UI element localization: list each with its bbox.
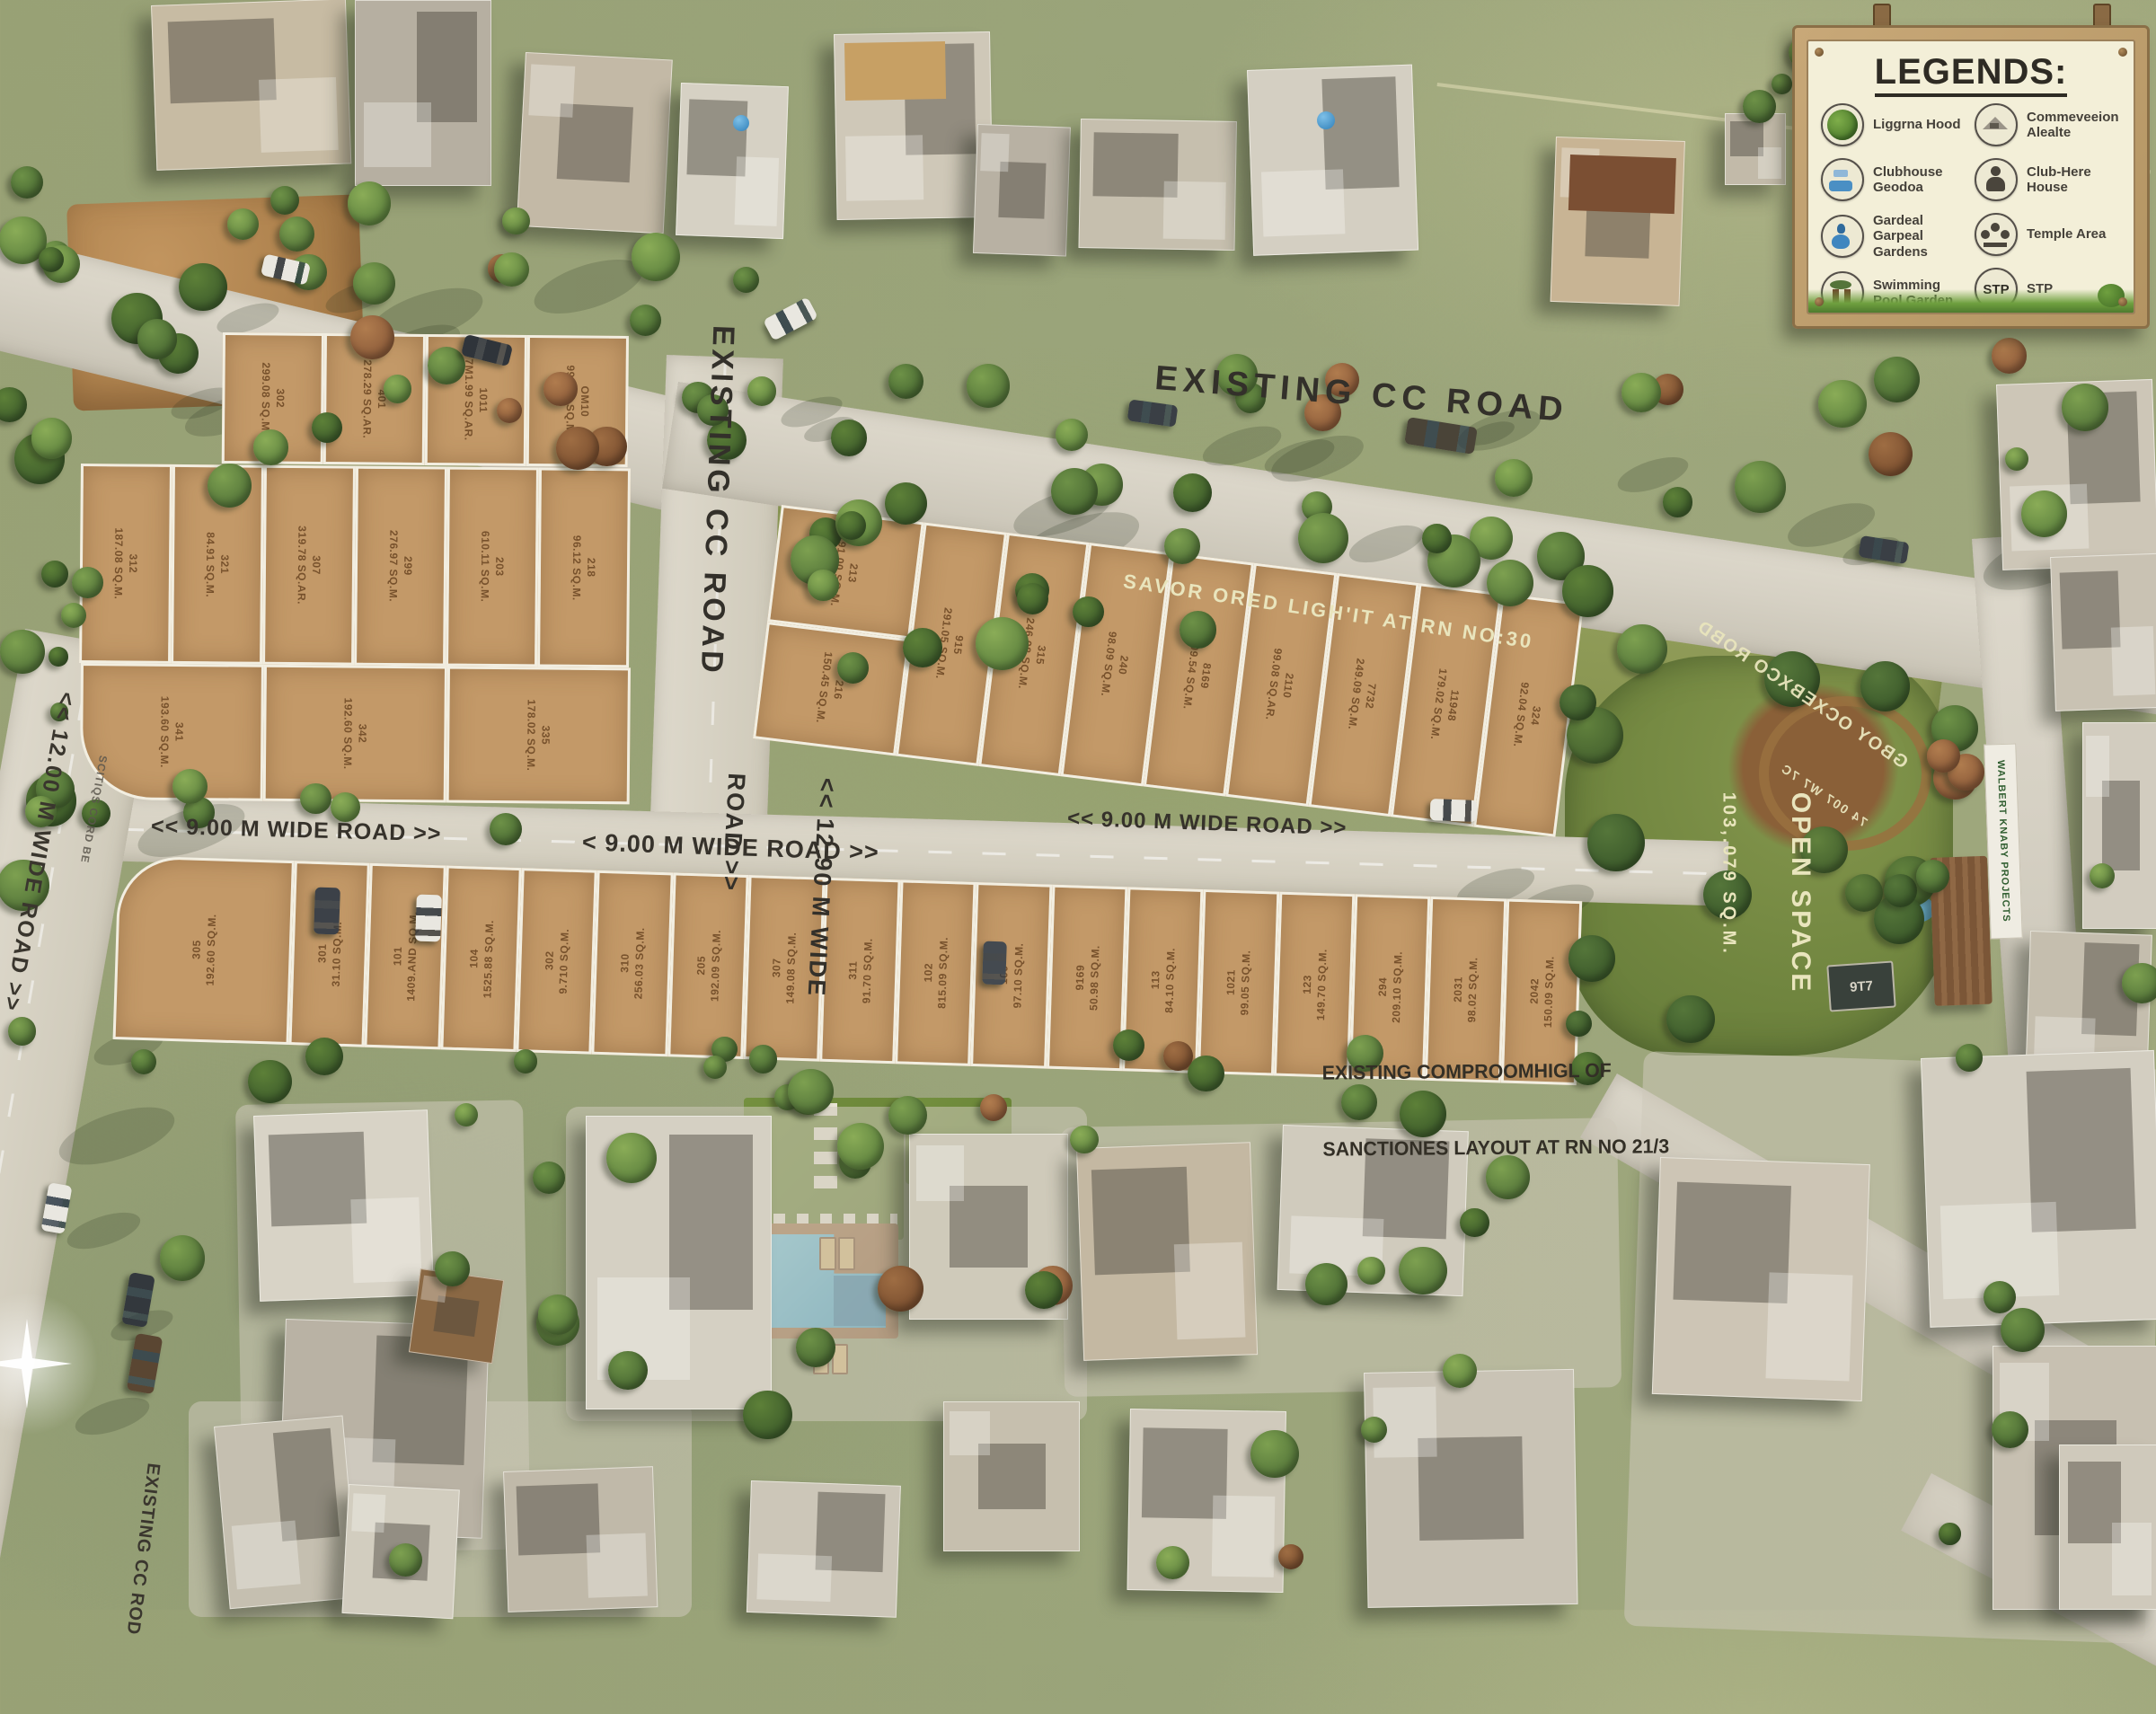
building bbox=[1652, 1157, 1870, 1401]
tree bbox=[348, 181, 392, 225]
tree bbox=[137, 319, 177, 358]
building-roof-section bbox=[350, 1197, 422, 1283]
tree bbox=[788, 1069, 834, 1115]
car bbox=[763, 296, 818, 340]
label-12-90-line1: << 12.90 M WIDE bbox=[803, 777, 842, 998]
building-roof-section bbox=[2111, 626, 2156, 696]
tree bbox=[131, 1049, 156, 1074]
building bbox=[973, 124, 1071, 257]
tree bbox=[743, 1391, 792, 1440]
tree bbox=[253, 429, 288, 464]
building-roof-section bbox=[587, 1533, 648, 1597]
tree bbox=[1939, 1523, 1960, 1544]
legend-item-label: Clubhouse Geodoa bbox=[1873, 164, 1967, 196]
vertical-signboard: WALBERT KNABY PROJECTS bbox=[1984, 743, 2023, 939]
building-roof-section bbox=[845, 135, 923, 200]
tree bbox=[1884, 874, 1917, 907]
legend-screw bbox=[1815, 48, 1824, 57]
plot-label: 113 84.10 SQ.M. bbox=[1147, 947, 1179, 1013]
tree bbox=[1443, 1354, 1477, 1388]
plot-label: 9169 50.98 SQ.M. bbox=[1072, 945, 1103, 1012]
car bbox=[982, 941, 1007, 985]
plot-label: 2110 99.08 SQ.AR. bbox=[1262, 647, 1300, 722]
building-roof-section bbox=[1163, 181, 1226, 239]
plot-row-upper-left-middle: 312 187.08 SQ.M.321 84.91 SQ.M.307 319.7… bbox=[79, 464, 631, 667]
building bbox=[253, 1109, 434, 1302]
clubhouse-garden-icon bbox=[1821, 158, 1864, 201]
legend-board: LEGENDS: Liggrna Hood Clubhouse Geodoa G… bbox=[1792, 25, 2150, 329]
tree bbox=[831, 420, 868, 456]
plot: 1021 99.05 SQ.M. bbox=[1197, 889, 1279, 1076]
building bbox=[1078, 119, 1236, 251]
garden-icon bbox=[1821, 215, 1864, 258]
tree bbox=[749, 1045, 778, 1073]
building-roof-section bbox=[1261, 169, 1345, 236]
tree bbox=[1056, 419, 1088, 451]
tree bbox=[980, 1094, 1007, 1121]
map-canvas: WALBERT KNABY PROJECTS 9T7 EXISTING CC R… bbox=[0, 0, 2156, 1610]
legend-screw bbox=[2118, 297, 2127, 306]
tree bbox=[837, 1123, 884, 1170]
tree bbox=[1422, 524, 1452, 553]
building-roof-section bbox=[1212, 1496, 1275, 1577]
tree bbox=[1663, 487, 1693, 517]
plot-label: 2042 150.09 SQ.M. bbox=[1525, 956, 1557, 1029]
car bbox=[314, 888, 340, 935]
building-roof-section bbox=[2086, 736, 2108, 797]
tree bbox=[455, 1103, 478, 1126]
label-compromise-line1: EXISTING COMPROOMHIGL OF bbox=[1322, 1058, 1612, 1083]
tree bbox=[514, 1049, 538, 1073]
plot: 335 178.02 SQ.M. bbox=[446, 667, 631, 805]
tree bbox=[384, 375, 411, 402]
building-roof-section bbox=[231, 1521, 300, 1590]
tree bbox=[494, 252, 529, 287]
tree bbox=[1568, 935, 1614, 981]
plot-label: 324 92.04 SQ.M. bbox=[1510, 681, 1547, 749]
tree bbox=[172, 769, 208, 804]
plot-label: 299 276.97 SQ.M. bbox=[385, 530, 415, 602]
tree bbox=[49, 647, 68, 667]
tree bbox=[606, 1133, 657, 1183]
tree bbox=[1163, 1041, 1193, 1071]
vertical-signboard-text: WALBERT KNABY PROJECTS bbox=[1995, 760, 2011, 923]
tree bbox=[747, 376, 777, 406]
tree bbox=[1305, 1263, 1347, 1305]
tree bbox=[435, 1251, 469, 1285]
plot: 203 610.11 SQ.M. bbox=[446, 467, 539, 667]
label-existing-cc-rod-bottom: EXISTING CC ROD bbox=[123, 1462, 163, 1624]
trees-icon bbox=[1821, 103, 1864, 146]
tree bbox=[1361, 1417, 1387, 1443]
legend-item: Clubhouse Geodoa bbox=[1821, 158, 1967, 201]
tree bbox=[179, 263, 226, 311]
legend-item-label: Temple Area bbox=[2027, 226, 2106, 242]
plot-label: 218 96.12 SQ.M. bbox=[570, 535, 599, 600]
tree bbox=[0, 387, 27, 422]
tree bbox=[1562, 565, 1613, 616]
legend-screw bbox=[2118, 48, 2127, 57]
legend-item: Liggrna Hood bbox=[1821, 103, 1967, 146]
building bbox=[1247, 65, 1418, 256]
plot-label: 305 192.60 SQ.M. bbox=[188, 914, 219, 986]
plot: 218 96.12 SQ.M. bbox=[537, 467, 631, 667]
tree bbox=[533, 1162, 565, 1194]
building-roof-section bbox=[2112, 1523, 2151, 1596]
stp-unit-label: 9T7 bbox=[1850, 978, 1874, 995]
tree bbox=[632, 233, 680, 281]
plot-label: 11948 179.02 SQ.M. bbox=[1427, 667, 1465, 742]
building-roof-section bbox=[950, 1411, 990, 1456]
plot-label: 7732 249.09 SQ.M. bbox=[1345, 658, 1383, 732]
tree bbox=[1051, 468, 1098, 515]
building-roof-section bbox=[1174, 1242, 1246, 1339]
building bbox=[1725, 113, 1786, 185]
building bbox=[1921, 1050, 2156, 1328]
plot-label: 302 299.08 SQ.M. bbox=[258, 362, 287, 434]
tree bbox=[1735, 461, 1787, 513]
legend-panel: LEGENDS: Liggrna Hood Clubhouse Geodoa G… bbox=[1807, 40, 2135, 314]
tree bbox=[1278, 1544, 1303, 1569]
tree bbox=[2090, 863, 2115, 888]
label-compromise-line2: SANCTIONES LAYOUT AT RN NO 21/3 bbox=[1322, 1135, 1669, 1161]
plot-label: 104 1525.88 SQ.M. bbox=[465, 919, 497, 998]
tree bbox=[903, 628, 942, 667]
tree bbox=[1073, 596, 1103, 627]
tree bbox=[305, 1038, 343, 1075]
tree bbox=[11, 166, 43, 199]
tree bbox=[41, 561, 68, 588]
tree bbox=[543, 372, 577, 405]
tree bbox=[1560, 685, 1595, 720]
plot-label: 341 193.60 SQ.M. bbox=[157, 696, 187, 768]
plot-label: 321 84.91 SQ.M. bbox=[203, 532, 233, 597]
tree bbox=[2062, 384, 2108, 430]
legend-item: Club-Here House bbox=[1975, 158, 2121, 201]
tree bbox=[1621, 373, 1661, 412]
tree bbox=[703, 1056, 727, 1079]
label-existing-cc-road-top: EXISTING CC ROAD bbox=[1153, 359, 1569, 430]
building bbox=[2059, 1445, 2156, 1610]
tree bbox=[2122, 963, 2156, 1003]
plot: 341 193.60 SQ.M. bbox=[80, 663, 264, 801]
tree bbox=[2005, 447, 2028, 471]
tree bbox=[0, 630, 45, 675]
tree bbox=[1772, 74, 1792, 94]
tree bbox=[208, 464, 252, 508]
plot-label: 401 278.29 SQ.AR. bbox=[359, 359, 389, 438]
legend-item-label: Liggrna Hood bbox=[1873, 117, 1961, 132]
building-roof-section bbox=[916, 1145, 964, 1201]
tree bbox=[1874, 357, 1920, 402]
building-roof-section bbox=[364, 102, 431, 167]
plot-label: 335 178.02 SQ.M. bbox=[524, 699, 553, 771]
legend-left-column: Liggrna Hood Clubhouse Geodoa Gardeal Ga… bbox=[1821, 103, 1967, 314]
tree bbox=[808, 570, 838, 600]
plot: 342 192.60 SQ.M. bbox=[263, 665, 447, 803]
tree bbox=[1818, 380, 1866, 428]
tree bbox=[1587, 814, 1645, 871]
tree bbox=[72, 567, 103, 598]
water-tank bbox=[733, 115, 749, 131]
tree bbox=[1164, 528, 1200, 564]
club-house-icon bbox=[1975, 158, 2018, 201]
plot-label: 1011 7M1.99 SQ.AR. bbox=[461, 359, 490, 441]
tree bbox=[160, 1235, 205, 1280]
label-12-90-m-wide-road: << 12.90 M WIDE ROAD >> bbox=[677, 737, 874, 1042]
tree bbox=[1992, 338, 2027, 373]
building-roof-section bbox=[980, 133, 1009, 172]
building bbox=[517, 52, 673, 234]
tree bbox=[2001, 1308, 2045, 1352]
tree bbox=[497, 398, 522, 423]
plot: 305 192.60 SQ.M. bbox=[113, 855, 295, 1045]
building bbox=[151, 0, 351, 171]
plot: 216 150.45 SQ.M. bbox=[753, 622, 910, 756]
tree bbox=[556, 427, 599, 470]
car bbox=[1127, 399, 1179, 427]
legend-title: LEGENDS: bbox=[1821, 52, 2121, 93]
convention-icon bbox=[1975, 103, 2018, 146]
plot: 102 815.09 SQ.M. bbox=[895, 879, 976, 1066]
building bbox=[355, 0, 491, 186]
building-roof-section bbox=[1766, 1272, 1853, 1381]
plot-label: 312 187.08 SQ.M. bbox=[110, 527, 140, 599]
building-roof-section bbox=[351, 1493, 386, 1533]
legend-item-label: Gardeal Garpeal Gardens bbox=[1873, 213, 1967, 260]
plot: 302 9.710 SQ.M. bbox=[516, 868, 597, 1055]
tree bbox=[248, 1060, 291, 1103]
tree bbox=[967, 364, 1011, 408]
plot-label: 123 149.70 SQ.M. bbox=[1299, 949, 1330, 1021]
plot-row-upper-left-bottom: 341 193.60 SQ.M.342 192.60 SQ.M.335 178.… bbox=[80, 663, 631, 804]
tree bbox=[1495, 459, 1533, 497]
legend-item: Gardeal Garpeal Gardens bbox=[1821, 213, 1967, 260]
car bbox=[415, 895, 442, 942]
legend-item-label: Club-Here House bbox=[2027, 164, 2121, 196]
tree bbox=[1916, 860, 1949, 893]
tree bbox=[888, 1096, 927, 1135]
plot-label: 310 256.03 SQ.M. bbox=[617, 927, 649, 1000]
water-tank bbox=[1317, 111, 1335, 129]
tree bbox=[1017, 583, 1048, 614]
brown-roof-terrace bbox=[1568, 155, 1676, 214]
building bbox=[2050, 553, 2156, 711]
building bbox=[747, 1480, 901, 1618]
legend-item: Commeveeion Alealte bbox=[1975, 103, 2121, 146]
tree bbox=[1956, 1044, 1984, 1072]
tree bbox=[733, 267, 759, 293]
tree bbox=[1070, 1126, 1098, 1153]
building bbox=[943, 1401, 1080, 1551]
plot-label: 240 98.09 SQ.M. bbox=[1098, 631, 1135, 699]
tree bbox=[1617, 624, 1666, 674]
building bbox=[1076, 1142, 1258, 1361]
tree bbox=[1250, 1430, 1298, 1478]
building-roof-section bbox=[756, 1553, 832, 1602]
tree bbox=[885, 482, 927, 525]
plot-label: 203 610.11 SQ.M. bbox=[477, 531, 507, 603]
legend-item: Temple Area bbox=[1975, 213, 2121, 256]
building bbox=[676, 83, 789, 239]
tree bbox=[227, 208, 259, 240]
tree bbox=[888, 364, 923, 399]
tree bbox=[1399, 1247, 1446, 1294]
building-roof-section bbox=[259, 76, 339, 153]
tree-shadow bbox=[63, 1205, 145, 1256]
tree bbox=[502, 208, 530, 235]
tree bbox=[8, 1017, 36, 1045]
building bbox=[503, 1466, 658, 1612]
plot: 104 1525.88 SQ.M. bbox=[440, 865, 522, 1052]
legend-screw bbox=[1815, 297, 1824, 306]
legend-grass-decoration bbox=[1808, 289, 2134, 313]
legend-item-label: Commeveeion Alealte bbox=[2027, 110, 2121, 141]
building bbox=[2082, 722, 2156, 929]
tree bbox=[1173, 473, 1212, 512]
tree bbox=[1869, 432, 1913, 477]
building-roof-section bbox=[734, 156, 779, 225]
plot-label: 102 815.09 SQ.M. bbox=[920, 937, 951, 1010]
building-roof-section bbox=[1758, 147, 1781, 179]
tree bbox=[1984, 1281, 2016, 1313]
plot: 101 1409.AND SQ.M. bbox=[365, 863, 446, 1050]
label-open-space-line2: 103,.079 SQ.M. bbox=[1719, 792, 1738, 956]
tree bbox=[1487, 560, 1533, 606]
tree bbox=[31, 418, 73, 459]
plot-label: 1021 99.05 SQ.M. bbox=[1223, 950, 1254, 1016]
plot: 312 187.08 SQ.M. bbox=[79, 464, 172, 664]
plot-label: 8169 209.54 SQ.M. bbox=[1180, 637, 1217, 711]
tree bbox=[39, 247, 64, 272]
tree bbox=[1188, 1056, 1224, 1092]
plot-label: 294 209.10 SQ.M. bbox=[1374, 951, 1406, 1024]
building-roof-section bbox=[529, 64, 576, 118]
tree bbox=[353, 262, 395, 305]
plot-label: 307 319.78 SQ.AR. bbox=[294, 526, 323, 605]
plot: 299 276.97 SQ.M. bbox=[354, 466, 447, 667]
tree bbox=[279, 216, 314, 252]
tree bbox=[2021, 490, 2068, 537]
plot-label: 2031 98.02 SQ.M. bbox=[1450, 957, 1481, 1023]
plot-label: 302 9.710 SQ.M. bbox=[541, 928, 572, 994]
tree bbox=[1180, 611, 1216, 648]
legend-right-column: Commeveeion Alealte Club-Here House Temp… bbox=[1975, 103, 2121, 314]
tree bbox=[878, 1266, 923, 1312]
car bbox=[1430, 799, 1478, 822]
rooftop-deck bbox=[844, 41, 946, 101]
site-plan-map: { "legend": { "title": "LEGENDS:", "left… bbox=[0, 0, 2156, 1610]
tree bbox=[1460, 1208, 1489, 1238]
tree bbox=[976, 617, 1029, 670]
tree bbox=[1357, 1257, 1385, 1285]
tree bbox=[300, 783, 331, 815]
label-compromise-note: EXISTING COMPROOMHIGL OF SANCTIONES LAYO… bbox=[1301, 1031, 1670, 1188]
building bbox=[1364, 1369, 1578, 1608]
building bbox=[214, 1415, 358, 1609]
plot: 310 256.03 SQ.M. bbox=[592, 870, 674, 1057]
tree bbox=[608, 1351, 647, 1390]
car bbox=[127, 1333, 163, 1394]
plot-label: 342 192.60 SQ.M. bbox=[340, 697, 370, 769]
tree bbox=[538, 1294, 578, 1334]
tree bbox=[630, 305, 661, 336]
temple-icon bbox=[1975, 213, 2018, 256]
plot: 307 319.78 SQ.AR. bbox=[262, 465, 356, 666]
tree bbox=[837, 652, 869, 684]
tree bbox=[1298, 513, 1348, 563]
tree bbox=[1845, 874, 1883, 912]
